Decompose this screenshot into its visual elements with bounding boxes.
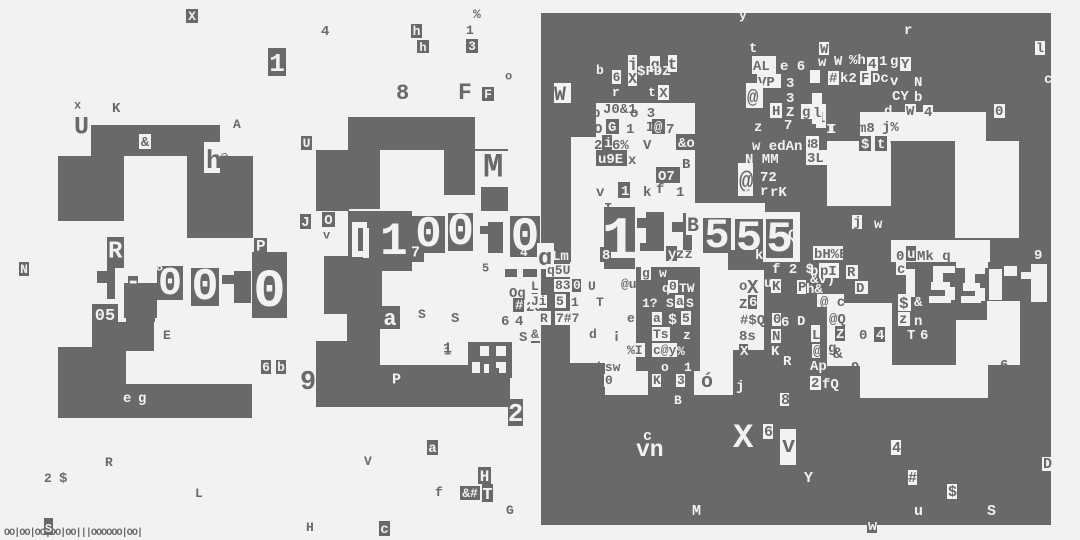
svg-text:5: 5 [704, 212, 729, 260]
svg-text:M: M [483, 150, 503, 188]
svg-text:0: 0 [995, 104, 1003, 120]
svg-text:8: 8 [396, 81, 409, 106]
svg-text:R: R [783, 354, 792, 370]
svg-text:e: e [123, 391, 131, 407]
svg-text:b: b [914, 90, 922, 106]
svg-text:T: T [907, 328, 915, 344]
svg-text:X: X [685, 346, 693, 361]
svg-text:0: 0 [253, 262, 285, 323]
svg-text:pI: pI [820, 264, 837, 280]
svg-text:t: t [749, 41, 757, 57]
svg-text:&: & [531, 327, 539, 342]
svg-text:&: & [141, 135, 150, 151]
svg-text:-: - [126, 270, 140, 297]
svg-text:S: S [45, 522, 52, 536]
svg-text:u: u [914, 503, 923, 520]
svg-text:A: A [233, 117, 241, 132]
svg-text:V: V [364, 454, 372, 469]
svg-text:i: i [604, 136, 612, 152]
svg-text:a: a [383, 307, 396, 332]
svg-text:%: % [677, 344, 685, 359]
svg-text:6: 6 [613, 70, 621, 85]
svg-text:r: r [612, 85, 620, 100]
svg-text:6: 6 [920, 328, 928, 344]
svg-text:d: d [589, 327, 597, 342]
svg-text:c@y: c@y [653, 343, 677, 358]
svg-text:U: U [303, 136, 311, 151]
svg-text:0: 0 [191, 262, 218, 313]
svg-text:L: L [531, 279, 539, 294]
svg-text:h: h [413, 24, 421, 39]
svg-text:OO|OO|OC|OO|OO|||OOOOOO|OO|: OO|OO|OC|OO|OO|||OOOOOO|OO| [4, 527, 143, 539]
svg-text:e 6: e 6 [780, 59, 805, 75]
svg-text:fQ: fQ [822, 377, 839, 393]
svg-text:w: w [818, 55, 827, 71]
svg-text:3: 3 [786, 76, 794, 92]
svg-text:Ap: Ap [810, 359, 827, 375]
svg-text:h: h [419, 41, 426, 55]
svg-text:c: c [1044, 72, 1052, 88]
svg-text:rK: rK [770, 185, 787, 201]
svg-text:D: D [797, 314, 805, 330]
svg-text:g: g [890, 54, 898, 70]
svg-text:U: U [588, 279, 596, 294]
svg-text:v: v [890, 74, 899, 90]
svg-text:5: 5 [682, 311, 690, 326]
svg-text:j: j [853, 215, 861, 231]
svg-text:Y: Y [804, 470, 813, 487]
svg-text:T: T [482, 486, 492, 505]
svg-text:#$Q: #$Q [740, 313, 765, 329]
svg-text:X: X [659, 86, 668, 102]
svg-text:&: & [833, 345, 843, 363]
svg-text:@Q: @Q [829, 312, 846, 328]
svg-text:c: c [897, 262, 905, 278]
svg-text:w: w [874, 217, 883, 233]
svg-text:5: 5 [482, 261, 489, 275]
svg-text:@u: @u [621, 277, 637, 292]
svg-text:9: 9 [851, 360, 859, 376]
svg-text:6: 6 [781, 315, 789, 331]
svg-text:1: 1 [380, 216, 408, 268]
svg-text:6: 6 [262, 360, 270, 375]
svg-text:Z: Z [739, 297, 747, 313]
svg-text:8: 8 [781, 392, 790, 409]
svg-text:bH%B: bH%B [814, 247, 848, 263]
svg-text:7#7: 7#7 [556, 311, 579, 326]
svg-text:6: 6 [501, 314, 509, 330]
svg-text:H: H [480, 468, 490, 486]
svg-text:L: L [195, 486, 203, 501]
svg-text:G: G [506, 503, 514, 518]
svg-text:r: r [904, 23, 912, 39]
svg-text:S: S [666, 296, 674, 311]
svg-text:u9E: u9E [598, 152, 623, 168]
svg-text:a: a [653, 311, 661, 326]
svg-text:2: 2 [811, 376, 819, 392]
svg-text:8: 8 [156, 260, 163, 274]
svg-text:@: @ [654, 120, 663, 136]
svg-text:I: I [826, 122, 834, 138]
svg-text:Z: Z [836, 327, 844, 343]
svg-text:H: H [306, 520, 314, 535]
svg-text:1?: 1? [642, 296, 658, 311]
svg-text:S: S [519, 330, 527, 346]
svg-text:F: F [458, 80, 472, 106]
svg-text:W: W [554, 84, 566, 107]
svg-text:05: 05 [95, 307, 115, 326]
svg-text:a: a [676, 294, 684, 309]
svg-text:w: w [868, 518, 877, 535]
svg-text:1: 1 [571, 295, 579, 310]
svg-text:5: 5 [556, 294, 564, 309]
svg-text:#: # [515, 298, 523, 314]
svg-text:D: D [1043, 456, 1052, 473]
svg-text:$: $ [861, 137, 869, 153]
svg-text:v: v [596, 185, 605, 201]
svg-text:v: v [782, 434, 795, 459]
svg-text:3: 3 [677, 373, 685, 388]
svg-text:X: X [740, 344, 749, 360]
svg-text:1: 1 [879, 54, 887, 70]
svg-text:1: 1 [621, 184, 629, 200]
svg-text:4: 4 [321, 24, 329, 40]
svg-text:e: e [627, 311, 635, 326]
svg-text:u: u [907, 247, 915, 263]
svg-text:&: & [914, 295, 923, 311]
svg-text:9: 9 [1034, 248, 1042, 264]
svg-text:%h: %h [849, 53, 866, 69]
svg-text:6: 6 [764, 424, 773, 441]
svg-text:0: 0 [744, 185, 752, 201]
svg-text:0: 0 [573, 278, 581, 293]
svg-text:6: 6 [749, 295, 757, 311]
svg-text:9: 9 [300, 368, 316, 398]
svg-text:E: E [163, 328, 171, 343]
svg-text:$FDZ: $FDZ [637, 64, 671, 80]
svg-text:Ts: Ts [653, 327, 669, 342]
svg-text:k2: k2 [840, 71, 857, 87]
svg-text:x: x [74, 98, 81, 112]
svg-text:$: $ [948, 484, 957, 501]
svg-text:N: N [20, 262, 28, 277]
svg-text:f: f [656, 182, 664, 198]
svg-text:aS: aS [555, 328, 571, 343]
svg-text:S: S [686, 296, 694, 311]
svg-text:h&: h& [806, 282, 823, 298]
svg-text:g: g [642, 266, 650, 281]
svg-text:O: O [324, 213, 332, 229]
svg-text:@ c: @ c [820, 295, 845, 311]
svg-text:k: k [755, 248, 763, 264]
svg-text:4: 4 [876, 328, 884, 344]
svg-text:t: t [648, 85, 656, 100]
svg-text:2: 2 [508, 399, 524, 429]
svg-text:K: K [772, 279, 781, 295]
svg-text:B: B [674, 393, 682, 408]
svg-text:l: l [813, 106, 821, 122]
svg-text:7: 7 [411, 245, 420, 262]
svg-text:7: 7 [784, 118, 792, 134]
svg-text:D: D [856, 281, 864, 297]
svg-text:ó: ó [701, 371, 713, 394]
svg-text:1: 1 [601, 209, 637, 277]
svg-text:b: b [810, 264, 818, 280]
svg-text:zz: zz [676, 247, 693, 263]
svg-text:T: T [596, 295, 604, 310]
svg-text:f 2 $: f 2 $ [772, 262, 814, 278]
svg-text:R: R [540, 311, 548, 326]
svg-text:@: @ [220, 152, 229, 168]
svg-text:CY: CY [892, 89, 909, 105]
svg-text:R: R [108, 239, 123, 266]
svg-text:v: v [323, 228, 330, 242]
svg-text:O: O [594, 122, 602, 138]
svg-text:J: J [301, 215, 309, 231]
svg-text:z: z [899, 312, 907, 328]
svg-text:c: c [380, 522, 388, 538]
svg-text:l: l [1036, 41, 1044, 56]
svg-text:$: $ [59, 471, 67, 487]
svg-text:b: b [277, 360, 285, 375]
svg-text:vn: vn [636, 437, 664, 463]
svg-text:Y: Y [901, 57, 910, 73]
svg-text:2: 2 [44, 471, 52, 486]
svg-text:M: M [692, 503, 701, 520]
svg-text:x: x [921, 138, 930, 154]
svg-text:I: I [604, 201, 612, 217]
svg-text:@: @ [747, 87, 759, 109]
svg-text:X: X [188, 9, 196, 24]
svg-text:ÿ: ÿ [739, 8, 747, 23]
svg-text:W: W [834, 54, 843, 70]
svg-text:#: # [829, 71, 837, 87]
svg-text:k: k [643, 185, 651, 201]
svg-text:j%: j% [882, 120, 899, 136]
svg-text:0: 0 [859, 328, 867, 344]
svg-text:z: z [754, 120, 762, 136]
svg-text:1: 1 [466, 23, 474, 38]
svg-text:B: B [682, 157, 691, 173]
svg-text:4: 4 [515, 314, 523, 330]
svg-text:Dc: Dc [872, 71, 889, 87]
svg-text:%: % [473, 7, 481, 22]
svg-text:N: N [914, 75, 922, 91]
svg-text:F: F [861, 71, 869, 87]
svg-text:F: F [484, 87, 492, 102]
svg-text:7: 7 [666, 122, 674, 138]
svg-text:3: 3 [468, 39, 476, 54]
svg-text:S: S [987, 503, 996, 520]
svg-text:5: 5 [827, 152, 835, 168]
svg-text:1: 1 [676, 185, 684, 201]
svg-text:4: 4 [520, 245, 528, 260]
svg-text:p: p [592, 106, 600, 122]
svg-text:X: X [733, 420, 754, 458]
svg-text:%I: %I [627, 343, 643, 358]
svg-text:z: z [683, 328, 691, 343]
svg-text:S: S [451, 311, 459, 327]
svg-text:4: 4 [892, 440, 901, 457]
svg-text:P: P [392, 372, 401, 389]
svg-text:U: U [74, 113, 89, 142]
svg-text:0: 0 [447, 207, 474, 258]
svg-text:K: K [653, 373, 661, 388]
svg-text:3L: 3L [807, 151, 824, 167]
svg-text:Ji: Ji [531, 294, 547, 309]
svg-text:B: B [687, 215, 699, 238]
svg-text:Q: Q [788, 228, 797, 245]
svg-text:a: a [428, 441, 437, 457]
svg-text:o: o [505, 69, 512, 83]
svg-text:S: S [418, 307, 426, 322]
svg-text:r: r [760, 184, 768, 200]
svg-text:H: H [772, 104, 780, 120]
svg-text:R: R [847, 265, 856, 281]
svg-text:#: # [908, 470, 917, 487]
svg-text:83: 83 [555, 278, 571, 293]
svg-text:x: x [628, 153, 637, 169]
svg-text:$: $ [899, 295, 909, 313]
svg-text:&#: &# [462, 486, 478, 501]
svg-text:&o: &o [678, 136, 695, 152]
svg-text:R: R [105, 455, 113, 470]
svg-text:j: j [736, 379, 744, 395]
svg-text:t: t [877, 137, 885, 153]
svg-text:6: 6 [1000, 358, 1008, 374]
svg-text:0: 0 [605, 373, 613, 388]
svg-text:8s: 8s [739, 329, 756, 345]
svg-text:q5U: q5U [547, 263, 570, 278]
svg-text:V: V [643, 138, 652, 154]
svg-text:8: 8 [602, 248, 610, 264]
svg-text:o: o [661, 360, 669, 375]
svg-text:f: f [435, 485, 443, 500]
svg-text:¡: ¡ [612, 327, 621, 344]
svg-text:b: b [596, 63, 604, 78]
svg-text:Mk q: Mk q [917, 249, 951, 265]
svg-text:@: @ [813, 344, 822, 360]
svg-text:K: K [112, 101, 121, 117]
svg-text:d: d [884, 104, 892, 120]
svg-text:4: 4 [924, 105, 932, 121]
svg-text:L: L [812, 328, 820, 344]
svg-text:8: 8 [810, 137, 818, 153]
svg-text:0: 0 [669, 279, 677, 294]
svg-text:1: 1 [684, 360, 692, 375]
svg-text:g: g [802, 105, 810, 121]
svg-text:AL: AL [753, 59, 770, 75]
svg-text:1: 1 [444, 344, 451, 358]
svg-text:g: g [138, 391, 146, 407]
svg-text:P: P [256, 238, 266, 256]
svg-text:G: G [608, 120, 616, 136]
svg-text:1: 1 [269, 49, 285, 79]
svg-text:W: W [906, 104, 915, 120]
svg-text:K: K [771, 344, 780, 360]
svg-text:m8: m8 [858, 121, 875, 137]
svg-text:w: w [659, 266, 667, 281]
svg-text:X: X [628, 71, 637, 88]
svg-text:N: N [772, 329, 780, 345]
svg-text:1: 1 [626, 122, 634, 138]
svg-text:$: $ [668, 312, 677, 329]
svg-text:v: v [890, 138, 899, 154]
